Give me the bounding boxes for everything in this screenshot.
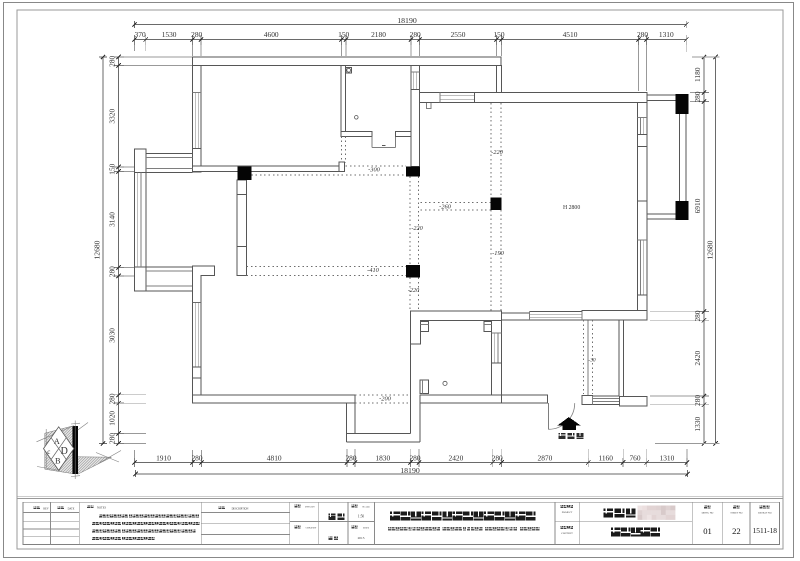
svg-text:NOTES: NOTES	[97, 506, 106, 509]
svg-text:18190: 18190	[400, 466, 420, 475]
svg-text:1910: 1910	[156, 454, 171, 463]
svg-text:1310: 1310	[660, 454, 675, 463]
svg-text:280: 280	[693, 395, 702, 406]
svg-text:DRWG NO: DRWG NO	[702, 512, 714, 515]
svg-text:-220: -220	[491, 149, 504, 156]
svg-text:SHEET NO: SHEET NO	[730, 512, 742, 515]
svg-text:2180: 2180	[371, 30, 386, 39]
svg-text:280: 280	[410, 30, 421, 39]
svg-text:A: A	[54, 437, 60, 446]
svg-text:REV: REV	[43, 507, 48, 510]
svg-text:1511-18: 1511-18	[753, 526, 778, 535]
svg-text:1180: 1180	[693, 67, 702, 82]
svg-text:-300: -300	[368, 167, 381, 174]
svg-text:150: 150	[493, 30, 504, 39]
svg-text:3140: 3140	[108, 212, 117, 227]
svg-text:12680: 12680	[93, 240, 102, 259]
svg-text:1530: 1530	[162, 30, 177, 39]
svg-text:-190: -190	[492, 250, 505, 257]
svg-text:DWG BY: DWG BY	[305, 506, 315, 509]
svg-text:-410: -410	[367, 267, 380, 274]
svg-text:c: c	[47, 448, 50, 456]
svg-text:1:50: 1:50	[358, 515, 365, 519]
svg-text:D: D	[61, 446, 68, 457]
svg-text:150: 150	[108, 163, 117, 174]
svg-text:280: 280	[108, 393, 117, 404]
svg-text:280: 280	[345, 454, 356, 463]
svg-text:B: B	[55, 457, 61, 466]
svg-text:-30: -30	[588, 358, 595, 364]
svg-text:280: 280	[108, 266, 117, 277]
svg-text:2550: 2550	[451, 30, 466, 39]
svg-text:280: 280	[693, 91, 702, 102]
svg-text:280: 280	[409, 454, 420, 463]
svg-text:H 2800: H 2800	[563, 205, 580, 211]
svg-text:1310: 1310	[659, 30, 674, 39]
svg-text:280: 280	[693, 310, 702, 321]
svg-text:4600: 4600	[264, 30, 279, 39]
svg-text:1020: 1020	[108, 411, 117, 426]
svg-text:-220: -220	[408, 287, 420, 294]
svg-text:2015: 2015	[358, 536, 365, 540]
svg-text:DESIGN NO: DESIGN NO	[758, 512, 772, 515]
svg-text:22: 22	[732, 526, 741, 536]
svg-text:-220: -220	[411, 225, 423, 232]
svg-text:280: 280	[637, 30, 648, 39]
svg-text:2870: 2870	[538, 454, 553, 463]
svg-text:150: 150	[338, 30, 349, 39]
svg-text:CONTENT: CONTENT	[561, 532, 573, 535]
svg-text:280: 280	[108, 55, 117, 66]
svg-text:1330: 1330	[693, 417, 702, 432]
svg-text:2420: 2420	[693, 351, 702, 366]
svg-text:760: 760	[629, 454, 640, 463]
svg-text:1160: 1160	[598, 454, 613, 463]
svg-text:DATE: DATE	[363, 527, 370, 530]
svg-text:370: 370	[135, 30, 146, 39]
svg-text:6910: 6910	[693, 198, 702, 213]
svg-text:280: 280	[108, 433, 117, 444]
svg-text:CHKD BY: CHKD BY	[306, 527, 317, 530]
svg-text:PROJECT: PROJECT	[562, 511, 573, 514]
svg-text:01: 01	[703, 526, 712, 536]
svg-text:DATE: DATE	[68, 507, 75, 510]
svg-text:3320: 3320	[108, 109, 117, 124]
svg-text:4810: 4810	[267, 454, 282, 463]
svg-text:280: 280	[191, 454, 202, 463]
svg-text:1830: 1830	[375, 454, 390, 463]
svg-text:280: 280	[191, 30, 202, 39]
svg-text:3030: 3030	[108, 328, 117, 343]
svg-text:SCALE: SCALE	[362, 506, 370, 509]
svg-text:18190: 18190	[397, 16, 417, 25]
svg-text:4510: 4510	[563, 30, 578, 39]
svg-text:12680: 12680	[706, 240, 715, 259]
svg-text:280: 280	[492, 454, 503, 463]
svg-text:-200: -200	[379, 396, 392, 403]
svg-text:-260: -260	[439, 204, 452, 211]
svg-text:DESCRIPTION: DESCRIPTION	[232, 507, 249, 510]
svg-text:2420: 2420	[449, 454, 464, 463]
